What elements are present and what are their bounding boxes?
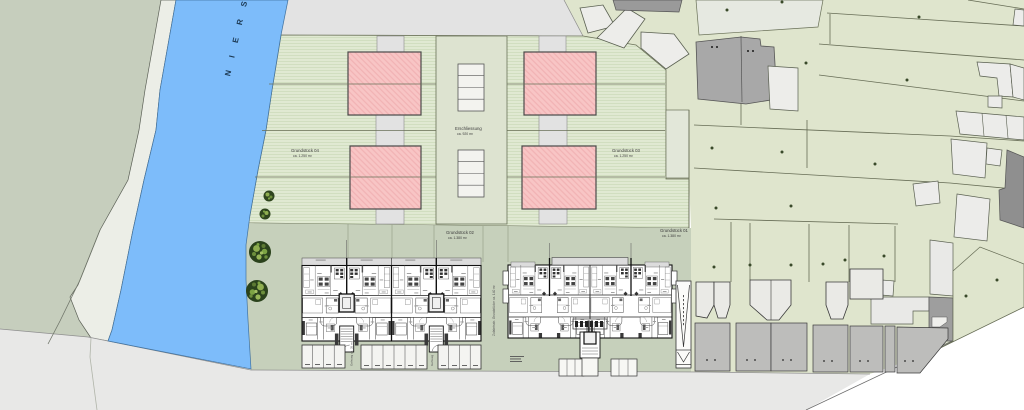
svg-text:ca. 920 m²: ca. 920 m² xyxy=(457,132,474,136)
svg-text:ca. 1.380 m²: ca. 1.380 m² xyxy=(662,234,682,238)
svg-text:ca. 1.380 m²: ca. 1.380 m² xyxy=(448,236,468,240)
svg-text:Grundstück 01: Grundstück 01 xyxy=(660,228,689,233)
svg-text:ca. 1.250 m²: ca. 1.250 m² xyxy=(293,154,313,158)
svg-text:Grundstück 03: Grundstück 03 xyxy=(612,148,641,153)
svg-text:ca. 1.250 m²: ca. 1.250 m² xyxy=(614,154,634,158)
svg-text:Grundstück 02: Grundstück 02 xyxy=(446,230,475,235)
svg-text:Zufahrtsstr. Grundstücke ca. 1: Zufahrtsstr. Grundstücke ca. 140 m² xyxy=(492,285,496,336)
svg-text:Gehweg ca. 35 m: Gehweg ca. 35 m xyxy=(350,342,354,366)
svg-text:Grundstück 04: Grundstück 04 xyxy=(291,148,320,153)
svg-text:Erschliessung: Erschliessung xyxy=(455,126,482,131)
svg-text:Gehweg: Gehweg xyxy=(430,354,434,366)
